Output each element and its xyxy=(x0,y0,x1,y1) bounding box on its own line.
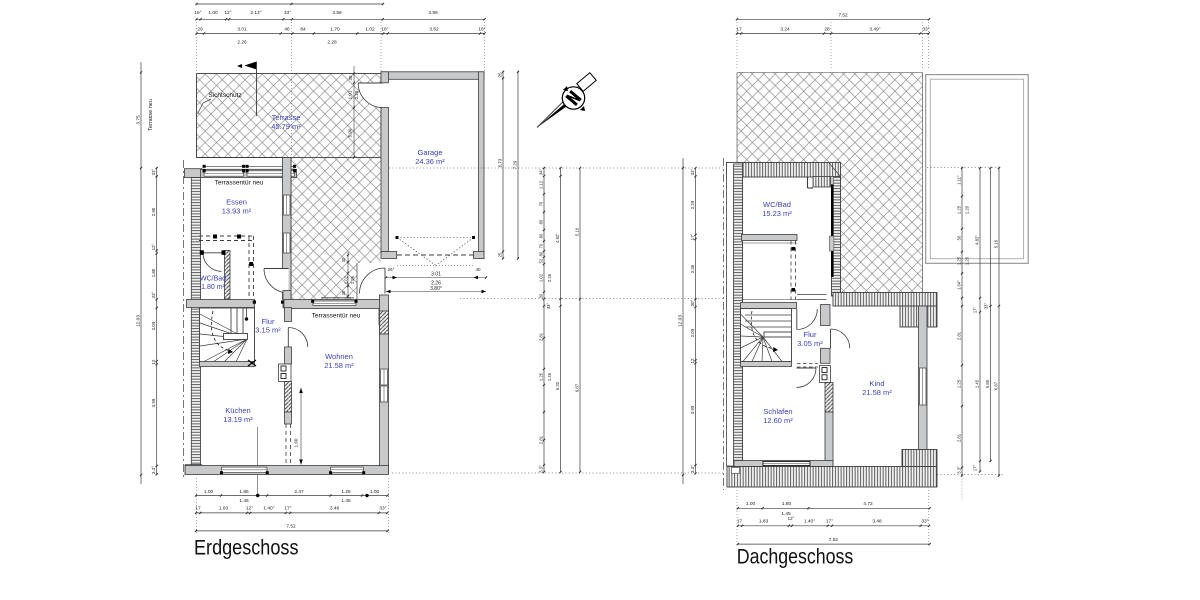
svg-text:5.16: 5.16 xyxy=(575,227,580,236)
svg-text:1.25: 1.25 xyxy=(341,489,351,495)
svg-text:1.00: 1.00 xyxy=(204,489,214,495)
svg-text:1.00: 1.00 xyxy=(208,10,218,16)
svg-text:2.26: 2.26 xyxy=(547,273,552,282)
svg-text:33°: 33° xyxy=(379,506,386,512)
svg-text:2.81: 2.81 xyxy=(539,332,544,341)
svg-text:Terrasse neu: Terrasse neu xyxy=(148,99,154,131)
svg-text:1.02: 1.02 xyxy=(539,273,544,282)
svg-text:2.13°: 2.13° xyxy=(250,10,261,16)
svg-text:3.24: 3.24 xyxy=(780,27,790,33)
svg-text:2.26: 2.26 xyxy=(350,275,355,284)
svg-text:3.48: 3.48 xyxy=(330,506,340,512)
svg-text:Terrassentür neu: Terrassentür neu xyxy=(215,180,264,187)
svg-text:1.70: 1.70 xyxy=(330,27,340,33)
svg-text:18°: 18° xyxy=(381,27,388,33)
svg-text:26°: 26° xyxy=(388,267,395,272)
svg-text:28: 28 xyxy=(824,27,830,33)
svg-text:1.83: 1.83 xyxy=(759,519,769,525)
svg-text:40: 40 xyxy=(475,267,481,272)
svg-text:80: 80 xyxy=(539,233,544,238)
svg-text:34°: 34° xyxy=(539,169,544,176)
svg-text:Terrasse: Terrasse xyxy=(272,113,301,122)
svg-text:45.79 m²: 45.79 m² xyxy=(271,122,301,131)
svg-text:2.36: 2.36 xyxy=(690,264,695,273)
svg-text:12.60 m²: 12.60 m² xyxy=(763,416,793,425)
svg-text:3.75: 3.75 xyxy=(136,115,142,125)
svg-text:12°: 12° xyxy=(246,506,253,512)
svg-text:12: 12 xyxy=(151,359,156,364)
svg-text:1.00: 1.00 xyxy=(746,501,756,507)
svg-text:2.81: 2.81 xyxy=(957,331,962,340)
svg-text:1.12: 1.12 xyxy=(539,180,544,189)
svg-text:3.56: 3.56 xyxy=(332,10,342,16)
svg-text:13.93 m²: 13.93 m² xyxy=(222,207,252,216)
svg-text:13.19 m²: 13.19 m² xyxy=(223,415,253,424)
svg-text:1.02: 1.02 xyxy=(344,275,349,284)
svg-text:1.11°: 1.11° xyxy=(957,175,962,185)
svg-text:6.73: 6.73 xyxy=(498,158,503,167)
svg-text:4.82°: 4.82° xyxy=(975,235,980,245)
svg-text:1.45: 1.45 xyxy=(239,498,249,504)
svg-text:36: 36 xyxy=(348,75,353,81)
svg-text:2.81: 2.81 xyxy=(539,435,544,444)
svg-text:Flur: Flur xyxy=(804,330,817,339)
svg-text:WC/Bad: WC/Bad xyxy=(200,276,226,283)
svg-text:33°: 33° xyxy=(284,10,291,16)
svg-text:46: 46 xyxy=(284,27,290,33)
svg-text:1.40°: 1.40° xyxy=(804,519,815,525)
svg-text:3.3°: 3.3° xyxy=(690,465,695,473)
svg-text:33°: 33° xyxy=(984,303,989,310)
svg-text:3.48: 3.48 xyxy=(872,519,882,525)
svg-text:3.3°: 3.3° xyxy=(151,466,156,474)
svg-text:1.40°: 1.40° xyxy=(263,506,274,512)
svg-text:Schlafen: Schlafen xyxy=(763,407,792,416)
svg-text:Küchen: Küchen xyxy=(225,406,250,415)
svg-text:12.03: 12.03 xyxy=(136,315,142,327)
svg-text:12.03: 12.03 xyxy=(678,315,684,327)
svg-text:2.81: 2.81 xyxy=(957,433,962,442)
svg-text:2.29: 2.29 xyxy=(690,200,695,209)
svg-text:1.04°: 1.04° xyxy=(957,280,962,290)
svg-text:5.90: 5.90 xyxy=(348,128,353,137)
svg-text:29: 29 xyxy=(197,27,203,33)
svg-text:3.3°: 3.3° xyxy=(957,466,962,474)
svg-text:1.80: 1.80 xyxy=(151,268,156,277)
svg-text:17°: 17° xyxy=(973,465,978,472)
svg-text:12°: 12° xyxy=(224,10,231,16)
svg-text:3.99: 3.99 xyxy=(151,398,156,407)
svg-text:2.28: 2.28 xyxy=(327,40,337,46)
svg-text:17: 17 xyxy=(737,519,743,525)
svg-text:2.26: 2.26 xyxy=(237,40,247,46)
svg-text:1.45: 1.45 xyxy=(341,498,351,504)
svg-text:1.00: 1.00 xyxy=(370,489,380,495)
svg-text:Kind: Kind xyxy=(869,379,884,388)
svg-text:3.15 m²: 3.15 m² xyxy=(255,326,281,335)
svg-text:17: 17 xyxy=(195,506,201,512)
svg-text:2.09: 2.09 xyxy=(690,328,695,337)
svg-text:3.49°: 3.49° xyxy=(869,27,880,33)
svg-text:7.52: 7.52 xyxy=(829,537,839,543)
svg-text:33°: 33° xyxy=(921,519,928,525)
svg-text:50: 50 xyxy=(957,235,962,240)
svg-text:33°: 33° xyxy=(690,168,695,175)
svg-text:7.52: 7.52 xyxy=(286,524,296,530)
svg-text:6.87: 6.87 xyxy=(994,381,999,390)
svg-text:Sichtschutz: Sichtschutz xyxy=(208,92,241,99)
svg-text:30: 30 xyxy=(539,293,544,298)
svg-text:1.25: 1.25 xyxy=(957,205,962,214)
svg-text:15.23 m²: 15.23 m² xyxy=(762,209,792,218)
svg-text:3.62: 3.62 xyxy=(429,27,439,33)
svg-text:Terrassentür neu: Terrassentür neu xyxy=(312,313,361,320)
svg-text:3.99: 3.99 xyxy=(428,10,438,16)
svg-text:5.16: 5.16 xyxy=(994,239,999,248)
svg-text:17°: 17° xyxy=(284,506,291,512)
svg-text:3.99: 3.99 xyxy=(690,405,695,414)
svg-text:30: 30 xyxy=(341,290,346,295)
svg-text:6.87: 6.87 xyxy=(575,383,580,392)
svg-text:2.26: 2.26 xyxy=(354,90,359,99)
svg-text:84: 84 xyxy=(300,27,306,33)
svg-text:2.90: 2.90 xyxy=(151,207,156,216)
svg-text:3.01: 3.01 xyxy=(431,272,441,278)
svg-text:1.80 m²: 1.80 m² xyxy=(201,284,225,291)
svg-text:3.80°: 3.80° xyxy=(430,286,442,292)
svg-text:1.25: 1.25 xyxy=(957,379,962,388)
svg-text:80: 80 xyxy=(539,219,544,224)
svg-text:21.58 m²: 21.58 m² xyxy=(324,361,354,370)
svg-text:1.60: 1.60 xyxy=(294,438,299,447)
svg-text:70: 70 xyxy=(539,201,544,206)
svg-text:3.01: 3.01 xyxy=(237,27,247,33)
svg-text:1.25: 1.25 xyxy=(957,256,962,265)
svg-text:24.36 m²: 24.36 m² xyxy=(415,157,445,166)
svg-text:25: 25 xyxy=(498,72,503,78)
svg-text:4.72: 4.72 xyxy=(863,501,873,507)
svg-text:5.85: 5.85 xyxy=(985,379,990,388)
svg-text:12: 12 xyxy=(690,358,695,363)
svg-text:25: 25 xyxy=(498,252,503,258)
svg-text:12°: 12° xyxy=(151,243,156,250)
svg-text:WC/Bad: WC/Bad xyxy=(763,200,791,209)
svg-text:21.58 m²: 21.58 m² xyxy=(862,388,892,397)
svg-text:1.85: 1.85 xyxy=(239,489,249,495)
svg-text:33°: 33° xyxy=(151,168,156,175)
svg-text:7.52: 7.52 xyxy=(838,13,848,19)
svg-text:70: 70 xyxy=(539,243,544,248)
svg-text:Garage: Garage xyxy=(417,148,442,157)
svg-text:1.83: 1.83 xyxy=(219,506,229,512)
svg-text:4.92°: 4.92° xyxy=(555,233,560,243)
svg-text:3.3°: 3.3° xyxy=(539,465,544,473)
svg-text:17°: 17° xyxy=(973,307,978,314)
svg-text:1.20: 1.20 xyxy=(965,205,970,214)
svg-text:52: 52 xyxy=(539,258,544,263)
svg-text:16°: 16° xyxy=(194,10,201,16)
svg-text:80: 80 xyxy=(539,251,544,256)
svg-text:Dachgeschoss: Dachgeschoss xyxy=(737,544,854,568)
svg-text:17°: 17° xyxy=(826,519,833,525)
svg-text:3.05 m²: 3.05 m² xyxy=(797,339,823,348)
svg-text:12°: 12° xyxy=(788,516,795,521)
svg-text:17°: 17° xyxy=(690,233,695,240)
svg-text:1.01: 1.01 xyxy=(348,90,353,99)
svg-text:1.80: 1.80 xyxy=(782,501,792,507)
svg-text:6.20: 6.20 xyxy=(555,381,560,390)
svg-text:1.25: 1.25 xyxy=(539,372,544,381)
svg-text:Erdgeschoss: Erdgeschoss xyxy=(194,536,299,560)
svg-text:30°: 30° xyxy=(690,299,695,306)
svg-text:Wohnen: Wohnen xyxy=(325,352,353,361)
svg-text:Essen: Essen xyxy=(226,198,247,207)
svg-text:1.02: 1.02 xyxy=(365,27,375,33)
svg-text:30: 30 xyxy=(341,257,346,262)
svg-text:1.45: 1.45 xyxy=(547,372,552,381)
svg-text:33°: 33° xyxy=(546,303,551,310)
svg-text:1.20: 1.20 xyxy=(965,256,970,265)
svg-text:1.45: 1.45 xyxy=(975,379,980,388)
svg-text:2.09: 2.09 xyxy=(151,321,156,330)
svg-text:33°: 33° xyxy=(151,291,156,298)
svg-text:2.47: 2.47 xyxy=(294,489,304,495)
